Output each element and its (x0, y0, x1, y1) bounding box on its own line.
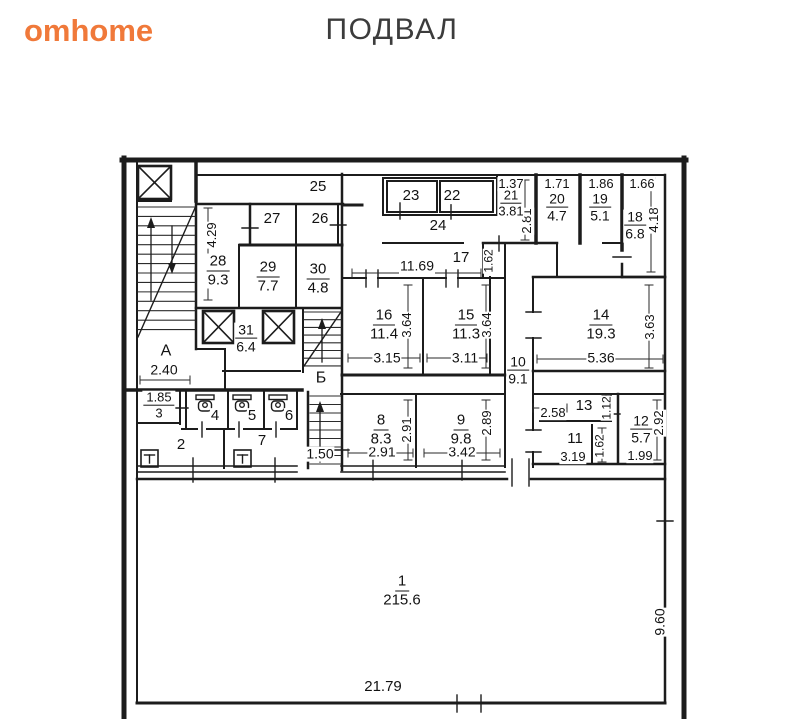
sink-icon (141, 450, 158, 467)
arrow-up-icon (147, 217, 155, 228)
sink-icon (234, 450, 251, 467)
elevator-shaft-icon (138, 166, 171, 199)
arrow-up-icon (316, 401, 324, 412)
arrow-down-icon (168, 263, 176, 274)
toilet-icon (233, 395, 251, 411)
toilet-icon (196, 395, 214, 411)
floorplan-drawing (0, 0, 800, 719)
staircase-b-upper (304, 312, 341, 366)
elevator-shaft-icon (263, 311, 294, 343)
walls-layer (122, 158, 686, 719)
elevator-shaft-icon (203, 311, 234, 343)
floorplan-page: omhome ПОДВАЛ 2527262322241.372.811.711.… (0, 0, 800, 719)
staircase-b-lower (310, 396, 341, 464)
dimension-lines (140, 178, 663, 462)
toilet-icon (269, 395, 287, 411)
staircase-a (138, 207, 195, 337)
